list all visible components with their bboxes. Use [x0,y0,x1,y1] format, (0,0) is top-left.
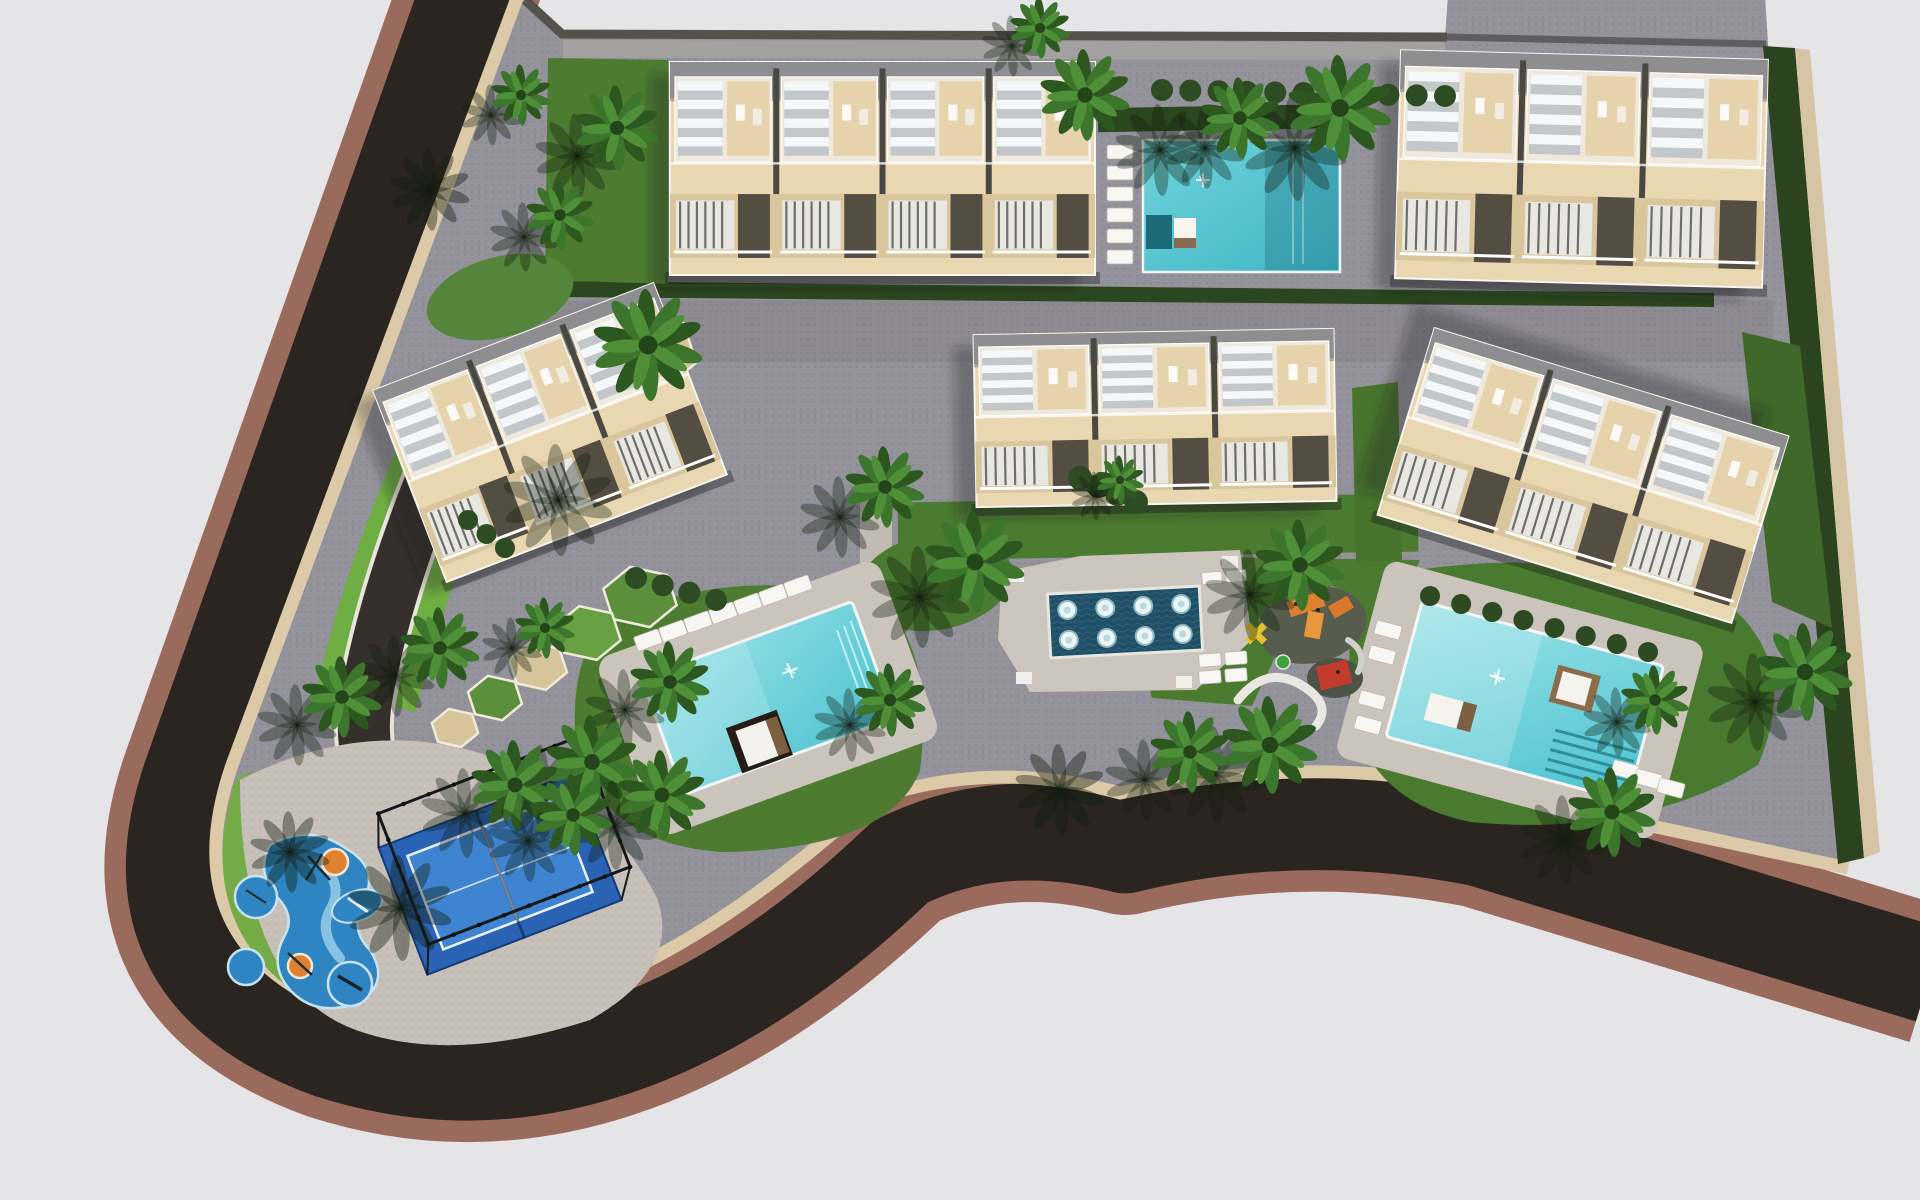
rect [1174,238,1196,248]
spa-pool [1047,586,1202,658]
rect [1146,215,1172,249]
building-a [665,62,1100,284]
scene-root [0,0,1920,1200]
spa-pad-4 [1176,676,1192,688]
spa-pad-3 [1016,672,1032,684]
circle [1336,670,1340,674]
building-d [969,329,1342,516]
circle [228,949,264,985]
site-plan-render [0,0,1920,1200]
circle [1276,655,1290,669]
screenshot-root [0,0,1920,1200]
circle [1316,608,1320,612]
